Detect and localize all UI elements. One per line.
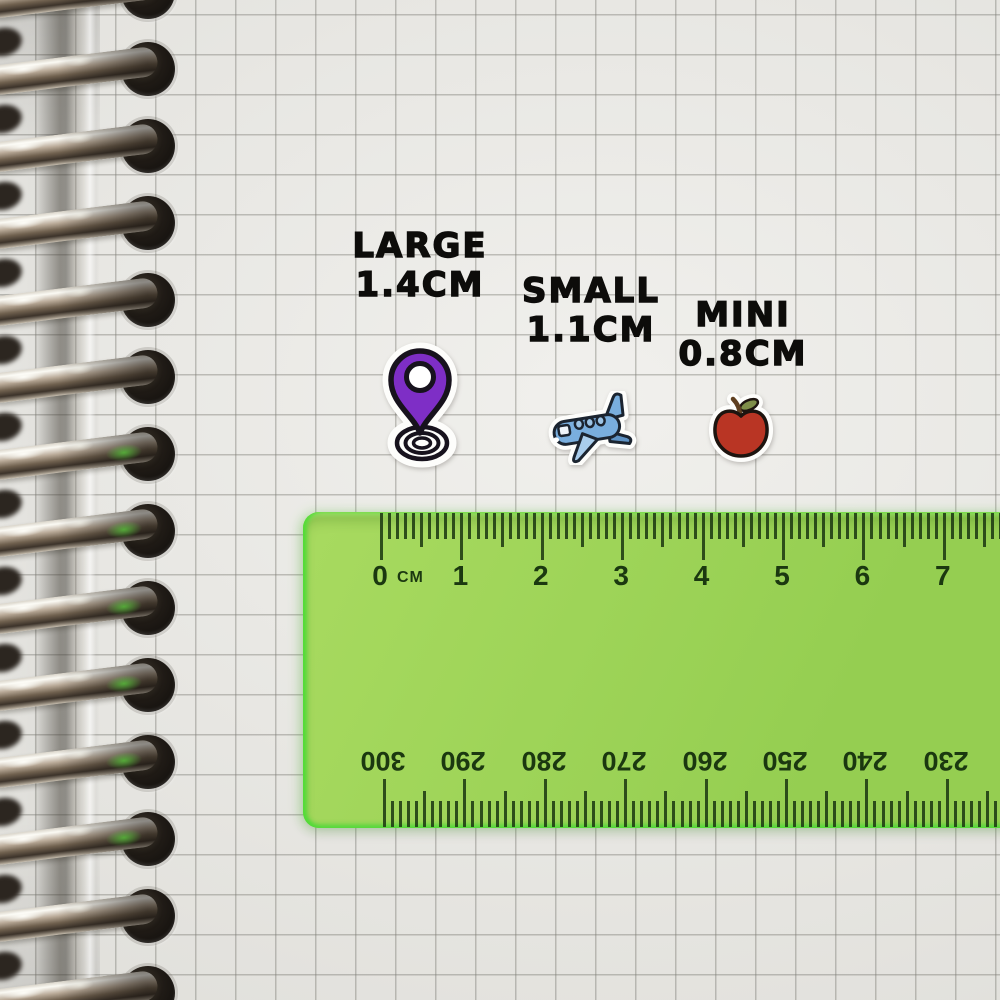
ruler-tick — [544, 779, 547, 827]
ruler-tick — [959, 513, 962, 539]
ruler-tick — [694, 513, 697, 539]
ring-back — [0, 409, 24, 444]
ruler-tick — [838, 513, 841, 539]
spiral-binding — [0, 0, 220, 1000]
ruler-number-bottom: 270 — [602, 745, 647, 776]
ruler-tick — [584, 791, 587, 827]
ruler-tick — [734, 513, 737, 539]
ruler-number-bottom: 280 — [521, 745, 566, 776]
ruler-tick — [906, 791, 909, 827]
ruler-tick — [718, 513, 721, 539]
ruler-tick — [962, 801, 965, 827]
ruler-number-bottom: 250 — [762, 745, 807, 776]
airplane-sticker — [543, 391, 643, 465]
ruler-number-bottom: 240 — [843, 745, 888, 776]
ruler-tick — [790, 513, 793, 539]
ruler-tick — [420, 513, 423, 547]
ruler-tick — [576, 801, 579, 827]
ruler-tick — [383, 779, 386, 827]
ruler-tick — [903, 513, 906, 547]
ruler-tick — [509, 513, 512, 539]
ruler-tick — [656, 801, 659, 827]
ruler-tick — [870, 513, 873, 539]
size-label-large: LARGE 1.4CM — [352, 227, 487, 305]
ruler-tick — [608, 801, 611, 827]
ruler-tick — [565, 513, 568, 539]
green-ruler: CM 01234567 300290280270260250240230220 — [303, 512, 1000, 828]
ruler-tick — [388, 513, 391, 539]
ruler-tick — [887, 513, 890, 539]
ruler-number-top: 7 — [935, 560, 951, 592]
ruler-tick — [865, 779, 868, 827]
ruler-tick — [822, 513, 825, 547]
ruler-tick — [391, 801, 394, 827]
ruler-tick — [793, 801, 796, 827]
ruler-number-top: 6 — [855, 560, 871, 592]
ring-back — [0, 332, 24, 367]
ruler-tick — [761, 801, 764, 827]
ruler-tick — [857, 801, 860, 827]
ruler-number-bottom: 260 — [682, 745, 727, 776]
ring-back — [0, 794, 24, 829]
ruler-tick — [697, 801, 700, 827]
ruler-tick — [882, 801, 885, 827]
ruler-tick — [653, 513, 656, 539]
ruler-tick — [592, 801, 595, 827]
ruler-tick — [769, 801, 772, 827]
ruler-tick — [890, 801, 893, 827]
size-name: LARGE — [352, 227, 487, 266]
ruler-tick — [468, 513, 471, 539]
ring-back — [0, 948, 24, 983]
ruler-tick — [528, 801, 531, 827]
ruler-tick — [525, 513, 528, 539]
ruler-number-top: 1 — [453, 560, 469, 592]
ruler-tick — [629, 513, 632, 539]
ruler-tick — [452, 513, 455, 539]
ruler-tick — [605, 513, 608, 539]
ruler-tick — [455, 801, 458, 827]
ruler-tick — [428, 513, 431, 539]
ring-back — [0, 101, 24, 136]
ring-back — [0, 871, 24, 906]
ruler-tick — [415, 801, 418, 827]
apple-icon — [706, 391, 776, 465]
ruler-tick — [922, 801, 925, 827]
ruler-tick — [801, 801, 804, 827]
ruler-tick — [460, 513, 463, 560]
ruler-tick — [814, 513, 817, 539]
ruler-tick — [919, 513, 922, 539]
apple-sticker — [706, 391, 776, 465]
ruler-tick — [729, 801, 732, 827]
ruler-tick — [504, 791, 507, 827]
ruler-tick — [493, 513, 496, 539]
ruler-tick — [480, 801, 483, 827]
ruler-tick — [798, 513, 801, 539]
ruler-tick — [533, 513, 536, 539]
size-value: 0.8CM — [678, 335, 807, 374]
ruler-tick — [873, 801, 876, 827]
ruler-tick — [745, 791, 748, 827]
ruler-tick — [753, 801, 756, 827]
ruler-tick — [809, 801, 812, 827]
ruler-tick — [549, 513, 552, 539]
ruler-tick — [849, 801, 852, 827]
ruler-tick — [678, 513, 681, 539]
ruler-unit-label: CM — [397, 569, 424, 587]
ruler-tick — [581, 513, 584, 547]
ruler-number-bottom: 300 — [360, 745, 405, 776]
ruler-tick — [702, 513, 705, 560]
punch-hole — [121, 0, 175, 19]
ring-back — [0, 178, 24, 213]
ruler-tick — [750, 513, 753, 539]
size-value: 1.4CM — [352, 266, 487, 305]
ruler-tick — [830, 513, 833, 539]
size-label-mini: MINI 0.8CM — [678, 296, 807, 374]
ruler-tick — [648, 801, 651, 827]
ruler-tick — [621, 513, 624, 560]
ring-back — [0, 717, 24, 752]
ruler-tick — [825, 791, 828, 827]
ruler-tick — [447, 801, 450, 827]
ruler-tick — [978, 801, 981, 827]
ruler-tick — [664, 791, 667, 827]
ruler-tick — [994, 801, 997, 827]
ruler-tick — [637, 513, 640, 539]
ruler-tick — [471, 801, 474, 827]
ruler-tick — [681, 801, 684, 827]
ruler-tick — [557, 513, 560, 539]
ruler-tick — [536, 801, 539, 827]
ruler-tick — [927, 513, 930, 539]
ruler-tick — [404, 513, 407, 539]
ruler-tick — [624, 779, 627, 827]
ruler-tick — [407, 801, 410, 827]
ruler-tick — [862, 513, 865, 560]
location-pin-sticker — [381, 340, 459, 468]
ruler-tick — [726, 513, 729, 539]
ruler-tick — [444, 513, 447, 539]
binder-ring — [0, 970, 159, 1000]
ruler-tick — [541, 513, 544, 560]
ruler-tick — [806, 513, 809, 539]
ruler-edge-highlight — [303, 512, 1000, 828]
location-pin-icon — [381, 340, 459, 468]
ruler-tick — [833, 801, 836, 827]
ruler-tick — [380, 513, 383, 560]
ruler-tick — [520, 801, 523, 827]
ruler-tick — [488, 801, 491, 827]
ruler-tick — [573, 513, 576, 539]
ruler-tick — [935, 513, 938, 539]
ring-back — [0, 24, 24, 59]
ruler-number-bottom: 290 — [441, 745, 486, 776]
ruler-tick — [817, 801, 820, 827]
ruler-tick — [517, 513, 520, 539]
ruler-tick — [496, 801, 499, 827]
ruler-tick — [846, 513, 849, 539]
ruler-tick — [686, 513, 689, 539]
ruler-tick — [782, 513, 785, 560]
ruler-tick — [669, 513, 672, 539]
ruler-tick — [613, 513, 616, 539]
ruler-tick — [954, 801, 957, 827]
ruler-number-top: 0 — [372, 560, 388, 592]
ring-back — [0, 563, 24, 598]
ruler-tick — [423, 791, 426, 827]
ring-back — [0, 255, 24, 290]
ruler-tick — [991, 513, 994, 539]
ruler-number-top: 2 — [533, 560, 549, 592]
ruler-tick — [930, 801, 933, 827]
ruler-tick — [689, 801, 692, 827]
ruler-tick — [951, 513, 954, 539]
size-value: 1.1CM — [522, 311, 660, 350]
ruler-tick — [777, 801, 780, 827]
ruler-tick — [911, 513, 914, 539]
ruler-tick — [914, 801, 917, 827]
ruler-tick — [501, 513, 504, 547]
ruler-tick — [436, 513, 439, 539]
ruler-tick — [737, 801, 740, 827]
ruler-tick — [512, 801, 515, 827]
ruler-tick — [640, 801, 643, 827]
ruler-tick — [742, 513, 745, 547]
ruler-tick — [785, 779, 788, 827]
ruler-tick — [396, 513, 399, 539]
ruler-tick — [713, 801, 716, 827]
ruler-tick — [938, 801, 941, 827]
ruler-tick — [399, 801, 402, 827]
ruler-tick — [560, 801, 563, 827]
ruler-number-top: 3 — [613, 560, 629, 592]
size-name: MINI — [678, 296, 807, 335]
notebook-photo: LARGE 1.4CM SMALL 1.1CM MINI 0.8CM — [0, 0, 1000, 1000]
ruler-tick — [983, 513, 986, 547]
ruler-tick — [946, 779, 949, 827]
ruler-tick — [552, 801, 555, 827]
ruler-tick — [879, 513, 882, 539]
ruler-tick — [854, 513, 857, 539]
ruler-tick — [766, 513, 769, 539]
ruler-tick — [412, 513, 415, 539]
ruler-tick — [632, 801, 635, 827]
ruler-tick — [463, 779, 466, 827]
ruler-tick — [439, 801, 442, 827]
ruler-tick — [645, 513, 648, 539]
ruler-tick — [485, 513, 488, 539]
ruler-tick — [568, 801, 571, 827]
ruler-tick — [898, 801, 901, 827]
size-label-small: SMALL 1.1CM — [522, 272, 660, 350]
ruler-number-bottom: 230 — [923, 745, 968, 776]
ruler-tick — [600, 801, 603, 827]
ruler-tick — [758, 513, 761, 539]
ruler-tick — [431, 801, 434, 827]
ruler-tick — [967, 513, 970, 539]
ruler-tick — [705, 779, 708, 827]
ruler-number-top: 4 — [694, 560, 710, 592]
ruler-tick — [970, 801, 973, 827]
ruler-tick — [986, 791, 989, 827]
ruler-tick — [774, 513, 777, 539]
ruler-tick — [721, 801, 724, 827]
ruler-tick — [589, 513, 592, 539]
ruler-tick — [943, 513, 946, 560]
ruler-tick — [616, 801, 619, 827]
ruler-tick — [710, 513, 713, 539]
ruler-tick — [895, 513, 898, 539]
ruler-tick — [841, 801, 844, 827]
ruler-tick — [661, 513, 664, 547]
ring-back — [0, 640, 24, 675]
airplane-icon — [543, 391, 643, 465]
ruler-number-top: 5 — [774, 560, 790, 592]
ruler-tick — [672, 801, 675, 827]
ring-back — [0, 486, 24, 521]
ruler-tick — [477, 513, 480, 539]
ruler-tick — [975, 513, 978, 539]
ruler-tick — [597, 513, 600, 539]
size-name: SMALL — [522, 272, 660, 311]
